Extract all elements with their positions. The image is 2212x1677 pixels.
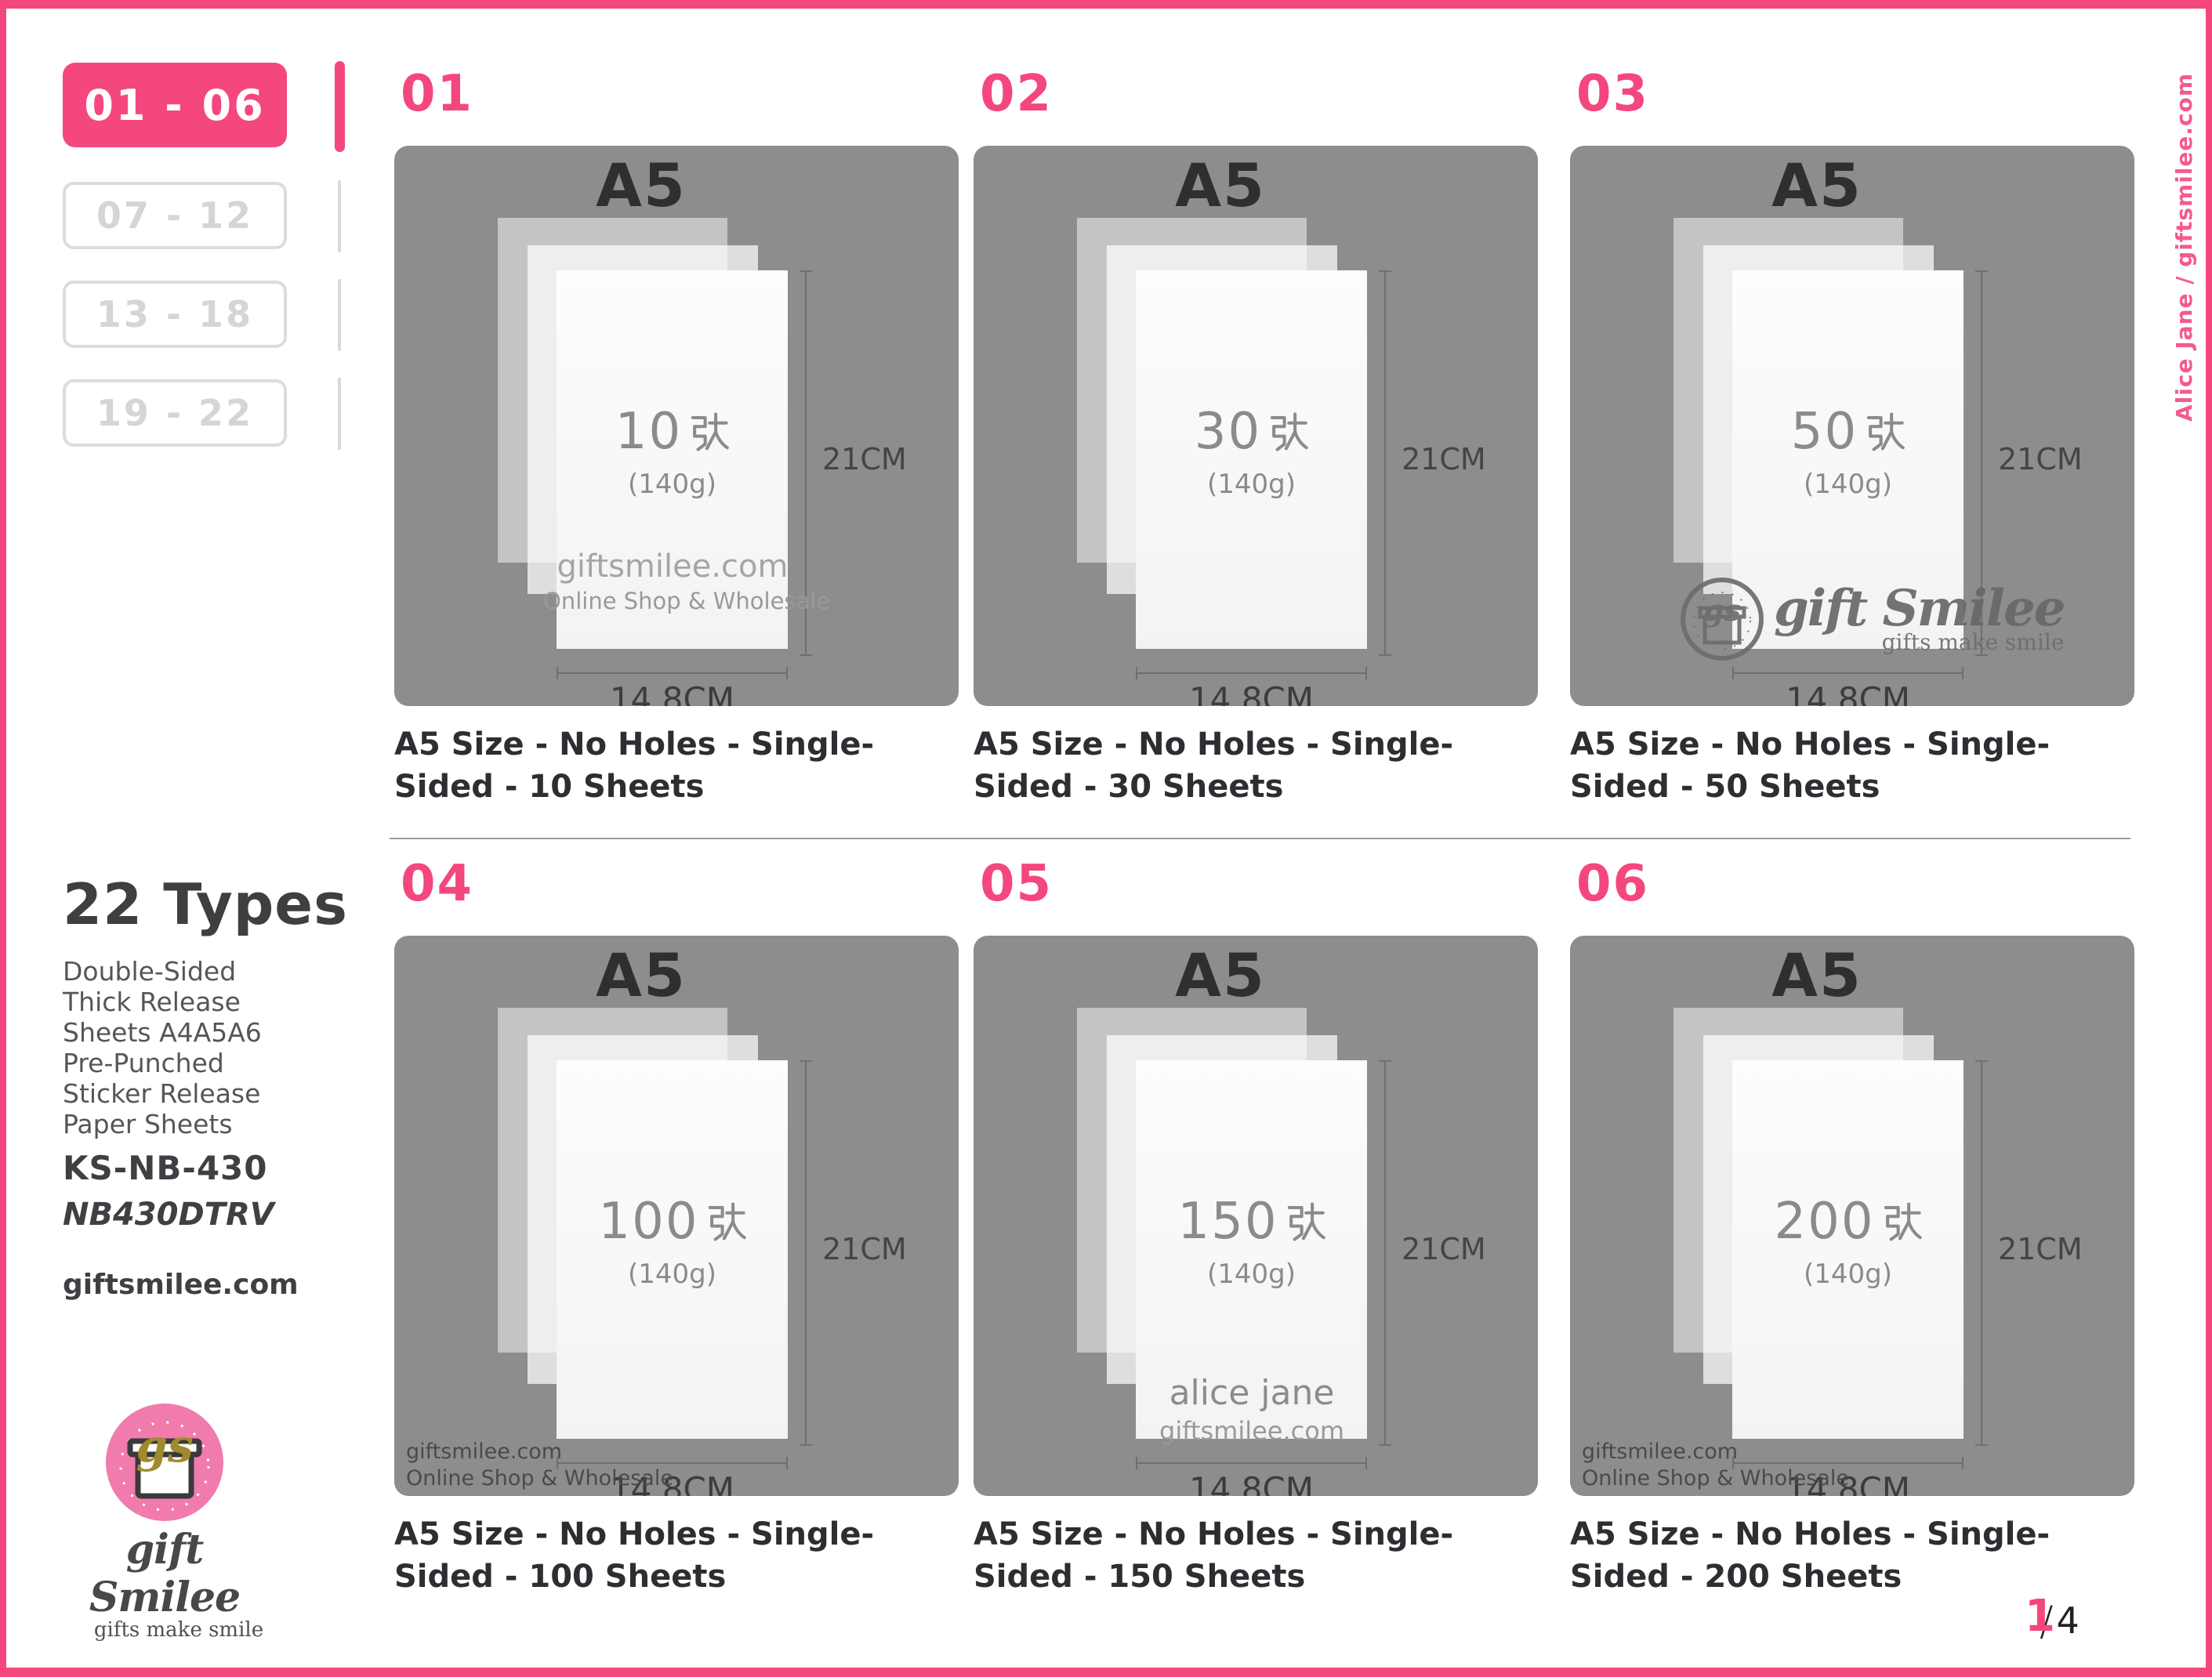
sheet-count: 50 (140g) [1721, 403, 1975, 500]
product-description-line: Sticker Release [63, 1078, 376, 1109]
sheet-count-number: 150 [1177, 1193, 1278, 1251]
product-card-01: 01 A5 10 (140g) 21CM 14.8CM giftsmilee.c… [394, 69, 959, 808]
sheet-count: 200 (140g) [1721, 1193, 1975, 1290]
card-caption: A5 Size - No Holes - Single-Sided - 150 … [974, 1513, 1522, 1598]
product-description-line: Pre-Punched [63, 1048, 376, 1078]
width-measure-label: 14.8CM [1721, 680, 1975, 706]
watermark-line2: Online Shop & Wholesale [543, 588, 802, 614]
card-visual: A5 100 (140g) 21CM 14.8CM giftsmilee.com… [394, 936, 959, 1496]
corner-watermark: giftsmilee.com Online Shop & Wholesale [1582, 1439, 1849, 1492]
logo-brand-text: gift Smilee [55, 1526, 274, 1621]
range-tabs: 01 - 06 07 - 12 13 - 18 19 - 22 [63, 63, 345, 447]
product-types-title: 22 Types [63, 871, 376, 937]
sheets-unit-glyph [687, 411, 729, 453]
brand-logo: gs gift Smilee gifts make smile [55, 1404, 274, 1642]
paper-weight: (140g) [1124, 469, 1379, 500]
height-measure-label: 21CM [822, 1232, 907, 1266]
product-model-code: KS-NB-430 [63, 1149, 376, 1187]
product-card-06: 06 A5 200 (140g) 21CM 14.8CM giftsmilee.… [1570, 859, 2134, 1598]
watermark-line1: giftsmilee.com [406, 1439, 673, 1465]
width-measure-line [1136, 1462, 1367, 1464]
height-measure-line [1384, 1060, 1386, 1446]
paper-weight: (140g) [1721, 1259, 1975, 1290]
height-measure-label: 21CM [1998, 442, 2083, 476]
width-measure-label: 14.8CM [1124, 1470, 1379, 1496]
frame-border-left [0, 0, 6, 1677]
tab-indicator-active [335, 61, 345, 152]
card-number: 02 [980, 69, 1538, 119]
product-card-05: 05 A5 150 (140g) 21CM 14.8CM alice jane … [974, 859, 1538, 1598]
logo-monogram: gs [136, 1419, 193, 1472]
card-number: 04 [401, 859, 959, 909]
width-measure-line [1732, 672, 1964, 674]
watermark-line1: giftsmilee.com [543, 549, 802, 585]
product-card-03: 03 A5 50 (140g) 21CM 14.8CM [1570, 69, 2134, 808]
paper-weight: (140g) [1721, 469, 1975, 500]
watermark-line1: giftsmilee.com [1582, 1439, 1849, 1465]
page-number-current: 1 [2025, 1591, 2055, 1642]
watermark-monogram: gs [1703, 592, 1741, 628]
watermark-line2: Online Shop & Wholesale [406, 1465, 673, 1492]
frame-border-top [0, 0, 2212, 9]
height-measure-line [805, 1060, 807, 1446]
sheet-count: 10 (140g) [545, 403, 800, 500]
sheet-count-number: 200 [1774, 1193, 1874, 1251]
paper-weight: (140g) [545, 469, 800, 500]
sheets-unit-glyph [1880, 1201, 1922, 1243]
tab-19-22[interactable]: 19 - 22 [63, 379, 287, 447]
sheet-count-number: 30 [1195, 403, 1261, 461]
watermark-line2: giftsmilee.com [1122, 1416, 1381, 1446]
watermark-line2: Online Shop & Wholesale [1582, 1465, 1849, 1492]
height-measure-line [1981, 1060, 1982, 1446]
product-description-line: Thick Release [63, 987, 376, 1017]
sheet-count: 30 (140g) [1124, 403, 1379, 500]
gift-box-logo-icon: gs [106, 1404, 223, 1521]
frame-border-right [2206, 0, 2212, 1677]
width-measure-line [1136, 672, 1367, 674]
card-number: 05 [980, 859, 1538, 909]
side-credit-text: Alice Jane / giftsmilee.com [2171, 92, 2197, 422]
card-visual: A5 30 (140g) 21CM 14.8CM [974, 146, 1538, 706]
sheet-count-number: 50 [1791, 403, 1858, 461]
product-info: 22 Types Double-Sided Thick Release Shee… [63, 871, 376, 1301]
card-caption: A5 Size - No Holes - Single-Sided - 10 S… [394, 723, 943, 808]
card-caption: A5 Size - No Holes - Single-Sided - 50 S… [1570, 723, 2119, 808]
product-description-line: Paper Sheets [63, 1109, 376, 1139]
sheet-count: 150 (140g) [1124, 1193, 1379, 1290]
watermark-line1: alice jane [1122, 1373, 1381, 1413]
paper-weight: (140g) [1124, 1259, 1379, 1290]
card-caption: A5 Size - No Holes - Single-Sided - 100 … [394, 1513, 943, 1598]
size-label: A5 [1672, 150, 1962, 220]
size-label: A5 [496, 150, 786, 220]
card-visual: A5 200 (140g) 21CM 14.8CM giftsmilee.com… [1570, 936, 2134, 1496]
card-visual: A5 10 (140g) 21CM 14.8CM giftsmilee.com … [394, 146, 959, 706]
card-visual: A5 50 (140g) 21CM 14.8CM [1570, 146, 2134, 706]
product-sku-code: NB430DTRV [63, 1197, 376, 1233]
width-measure-line [557, 672, 788, 674]
product-card-02: 02 A5 30 (140g) 21CM 14.8CM A5 Size - No… [974, 69, 1538, 808]
row-divider [390, 838, 2130, 839]
sheets-unit-glyph [1862, 411, 1905, 453]
width-measure-label: 14.8CM [1124, 680, 1379, 706]
card-number: 06 [1576, 859, 2134, 909]
product-description-line: Double-Sided [63, 956, 376, 987]
gift-box-watermark-icon: gs [1680, 577, 1764, 661]
height-measure-line [1384, 270, 1386, 656]
size-label: A5 [1075, 150, 1365, 220]
card-caption: A5 Size - No Holes - Single-Sided - 30 S… [974, 723, 1522, 808]
card-visual: A5 150 (140g) 21CM 14.8CM alice jane gif… [974, 936, 1538, 1496]
frame-border-bottom [0, 1668, 2212, 1677]
tab-indicator [338, 378, 341, 450]
paper-watermark: alice jane giftsmilee.com [1122, 1373, 1381, 1446]
height-measure-label: 21CM [1998, 1232, 2083, 1266]
watermark-brand-text: gift Smilee [1774, 584, 2064, 634]
sheet-count-number: 10 [615, 403, 682, 461]
product-description-line: Sheets A4A5A6 [63, 1017, 376, 1048]
sheets-unit-glyph [1283, 1201, 1325, 1243]
catalog-page: Alice Jane / giftsmilee.com 01 - 06 07 -… [0, 0, 2212, 1677]
card-number: 01 [401, 69, 959, 119]
sheets-unit-glyph [1266, 411, 1308, 453]
sheet-count: 100 (140g) [545, 1193, 800, 1290]
paper-watermark: giftsmilee.com Online Shop & Wholesale [543, 549, 802, 614]
tab-01-06[interactable]: 01 - 06 [63, 63, 287, 147]
tab-indicator [338, 279, 341, 351]
height-measure-label: 21CM [1402, 442, 1486, 476]
page-number-total: 4 [2057, 1599, 2080, 1642]
card-caption: A5 Size - No Holes - Single-Sided - 200 … [1570, 1513, 2119, 1598]
page-number: 1 / 4 [2025, 1591, 2080, 1642]
logo-tagline-text: gifts make smile [55, 1618, 274, 1642]
tab-indicator [338, 180, 341, 252]
height-measure-label: 21CM [822, 442, 907, 476]
sheets-unit-glyph [704, 1201, 746, 1243]
tab-07-12[interactable]: 07 - 12 [63, 182, 287, 249]
sheet-count-number: 100 [598, 1193, 698, 1251]
width-measure-label: 14.8CM [545, 680, 800, 706]
size-label: A5 [1672, 940, 1962, 1010]
height-measure-label: 21CM [1402, 1232, 1486, 1266]
corner-watermark: giftsmilee.com Online Shop & Wholesale [406, 1439, 673, 1492]
size-label: A5 [1075, 940, 1365, 1010]
product-card-04: 04 A5 100 (140g) 21CM 14.8CM giftsmilee.… [394, 859, 959, 1598]
brand-watermark: gs gift Smilee gifts make smile [1680, 577, 2064, 661]
paper-weight: (140g) [545, 1259, 800, 1290]
tab-13-18[interactable]: 13 - 18 [63, 281, 287, 348]
card-number: 03 [1576, 69, 2134, 119]
website-text: giftsmilee.com [63, 1269, 376, 1301]
size-label: A5 [496, 940, 786, 1010]
